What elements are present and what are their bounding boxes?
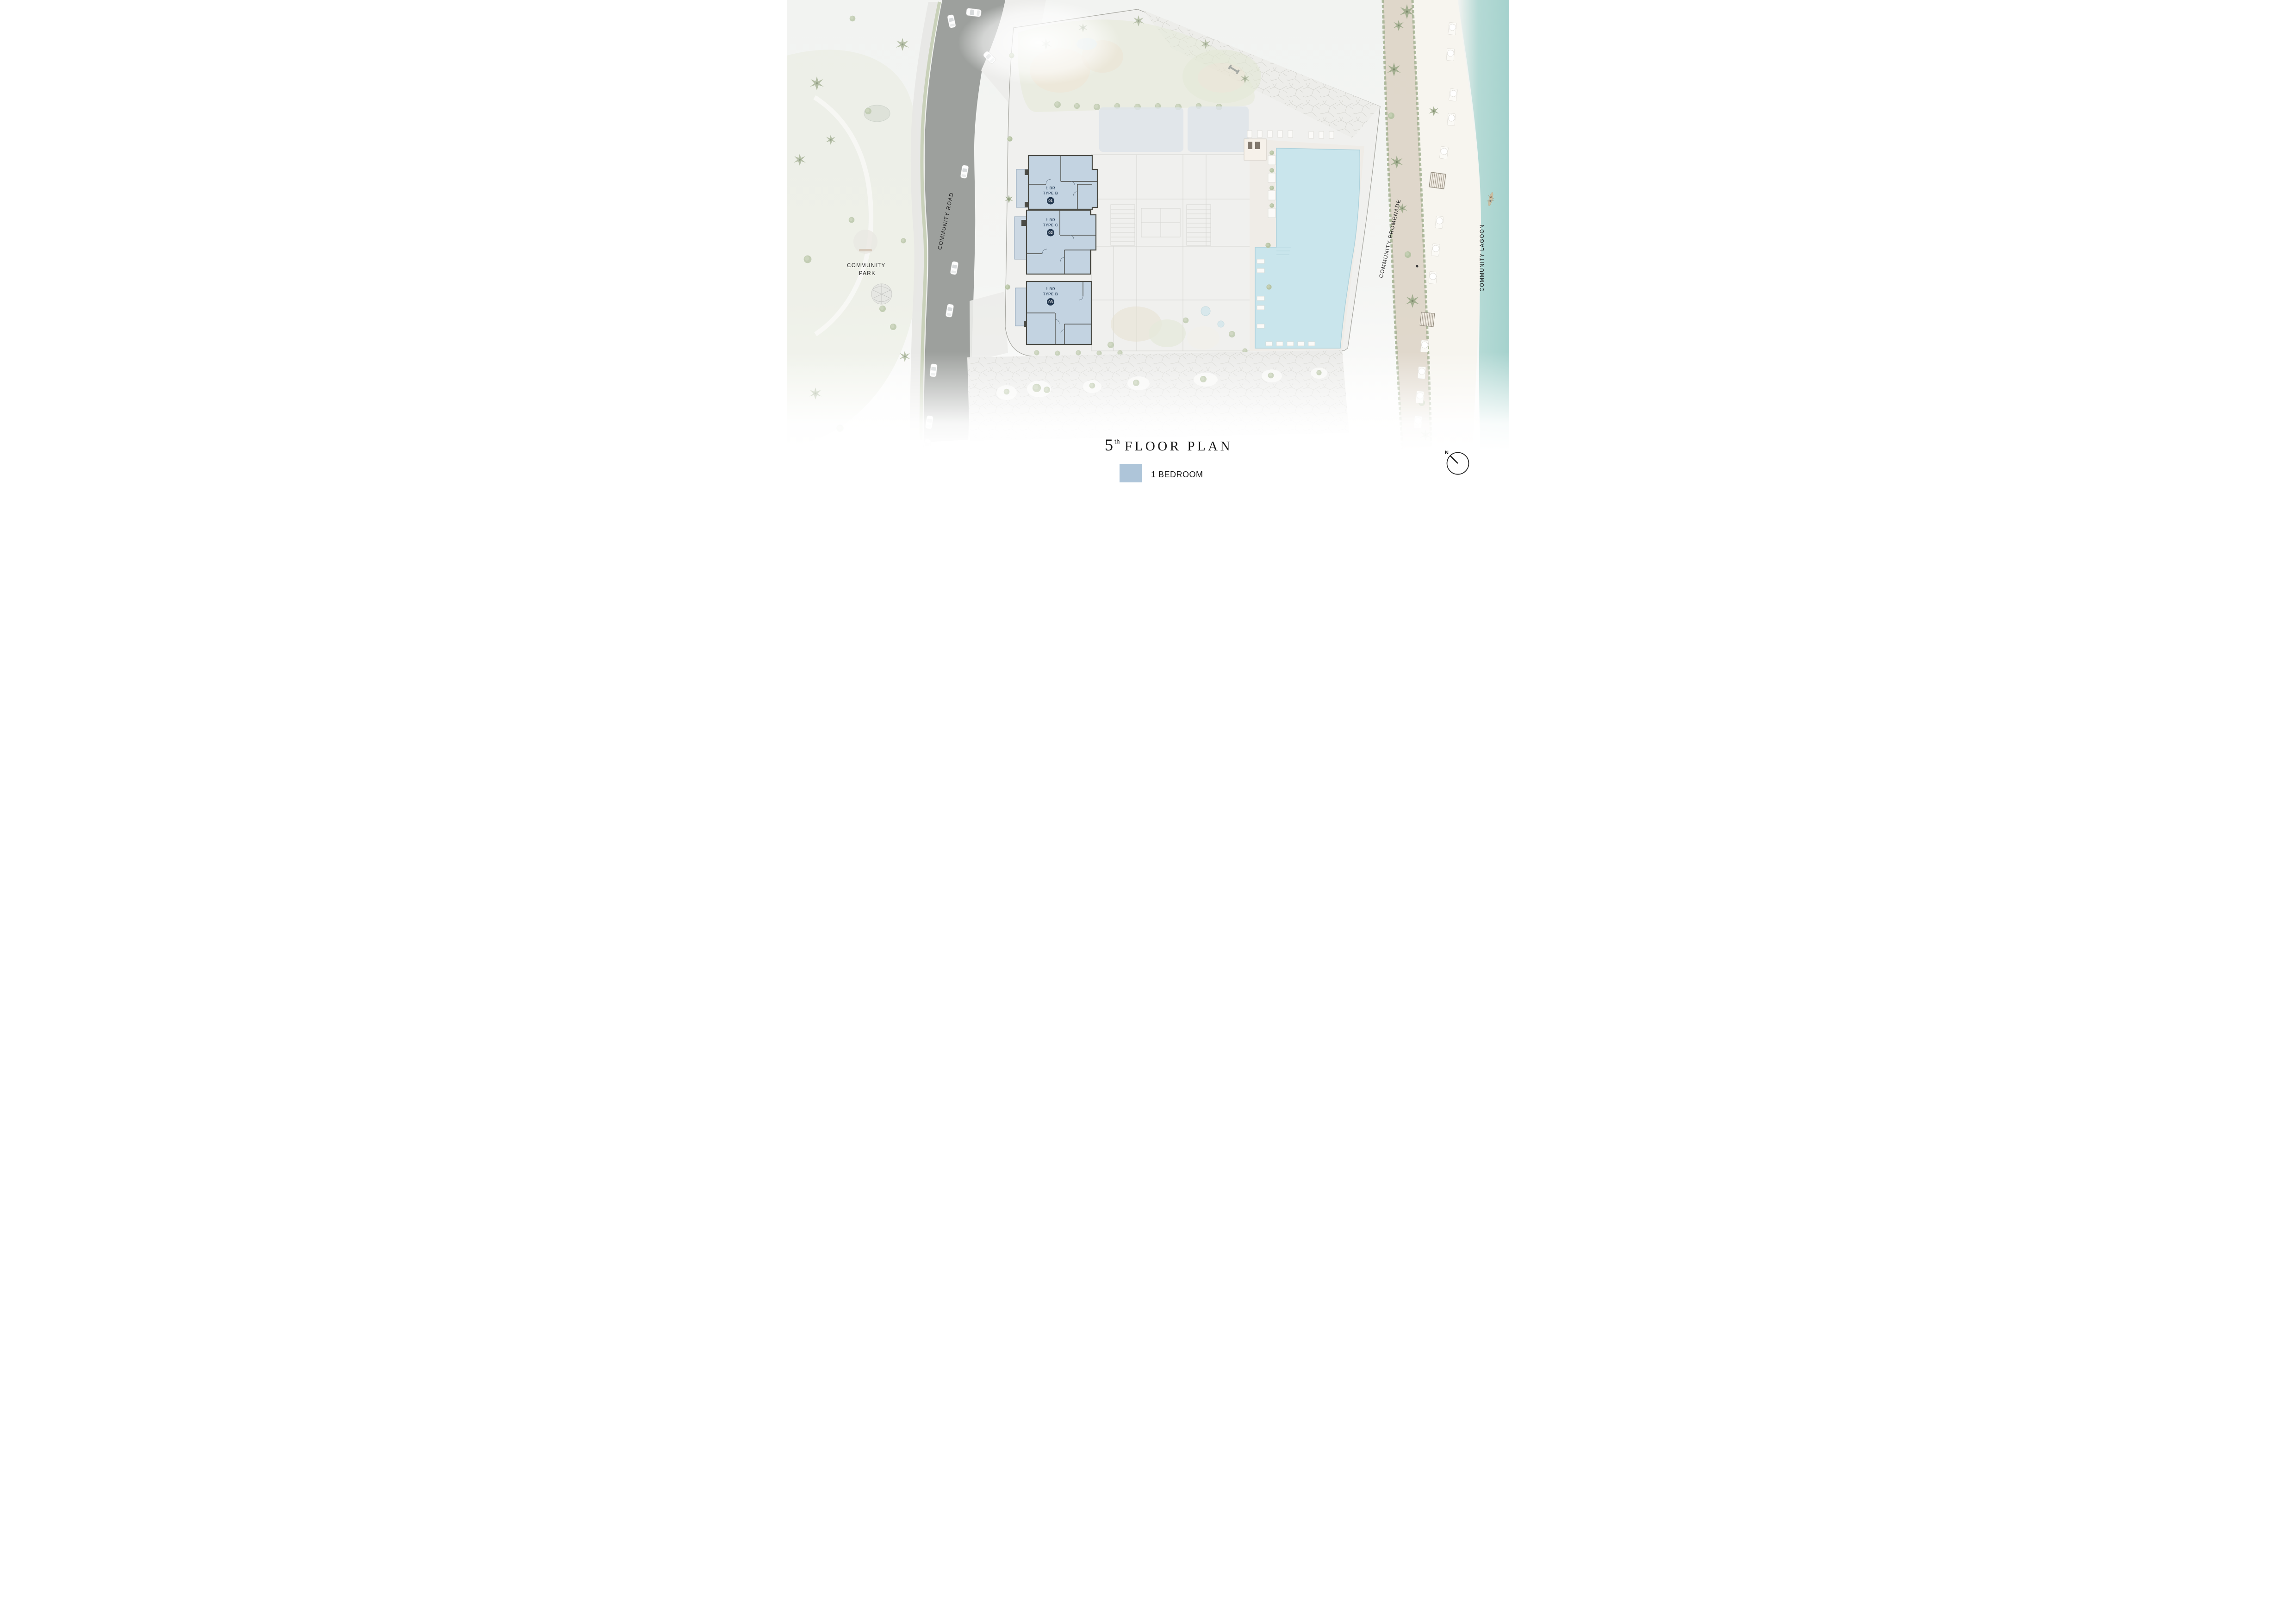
- beach-lounger-set: [1446, 48, 1455, 61]
- beach-lounger-set: [1435, 216, 1444, 229]
- legend-swatch-1-bedroom: [1120, 464, 1142, 482]
- pedestrian: [1416, 265, 1418, 267]
- unit-01-number: 01: [1048, 199, 1053, 203]
- unit-01-name: 1 BR: [1046, 186, 1056, 190]
- unit-01[interactable]: [1016, 156, 1097, 209]
- unit-03-number: 03: [1048, 300, 1053, 304]
- unit-02-name: 1 BR: [1046, 218, 1056, 222]
- title-floor-number: 5: [1105, 436, 1113, 454]
- fade-topleft: [958, 0, 1120, 85]
- unit-02-number: 02: [1048, 231, 1053, 235]
- unit-02-area[interactable]: [1027, 210, 1096, 274]
- beach-pergola: [1420, 312, 1435, 327]
- compass-north-label: N: [1445, 450, 1449, 456]
- beach-lounger-set: [1431, 244, 1440, 256]
- unit-01-balcony: [1016, 169, 1028, 207]
- page-title: FLOOR PLAN: [1125, 439, 1232, 454]
- site-plan-canvas: COMMUNITY PARK COMMUNITY ROAD: [787, 0, 1509, 511]
- unit-03-name: 1 BR: [1046, 287, 1056, 291]
- legend-label-1-bedroom: 1 BEDROOM: [1151, 470, 1203, 479]
- beach-lounger-set: [1449, 88, 1457, 101]
- beach-lounger-set: [1429, 271, 1437, 284]
- beach-lounger-set: [1420, 340, 1429, 352]
- unit-01-type: TYPE B: [1043, 191, 1058, 195]
- beach-lounger-set: [1439, 146, 1448, 159]
- title-ordinal: th: [1114, 438, 1120, 445]
- beach-lounger-set: [1448, 22, 1457, 35]
- beach-lounger-set: [1447, 113, 1456, 125]
- unit-03-type: TYPE B: [1043, 292, 1058, 296]
- unit-02-type: TYPE C: [1043, 223, 1058, 227]
- beach-pergola: [1429, 172, 1446, 189]
- floor-plan-page: COMMUNITY PARK COMMUNITY ROAD: [787, 0, 1509, 511]
- unit-03-balcony: [1015, 288, 1027, 326]
- fade-bottom: [787, 352, 1509, 511]
- unit-01-area[interactable]: [1028, 156, 1097, 209]
- community-lagoon-label: COMMUNITY LAGOON: [1480, 224, 1485, 292]
